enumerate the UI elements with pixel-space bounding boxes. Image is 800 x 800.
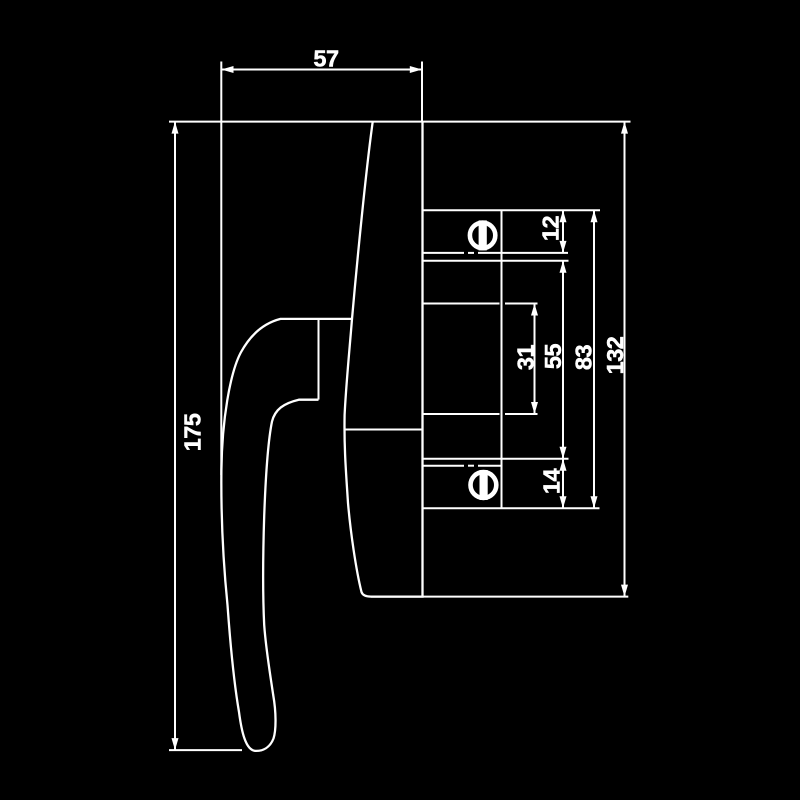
svg-text:175: 175 [180,413,206,451]
svg-text:132: 132 [602,336,628,374]
svg-text:83: 83 [571,345,597,371]
svg-text:57: 57 [313,45,339,71]
svg-text:31: 31 [513,345,539,371]
svg-text:55: 55 [540,344,566,370]
svg-text:14: 14 [539,469,565,495]
svg-text:12: 12 [538,216,564,242]
